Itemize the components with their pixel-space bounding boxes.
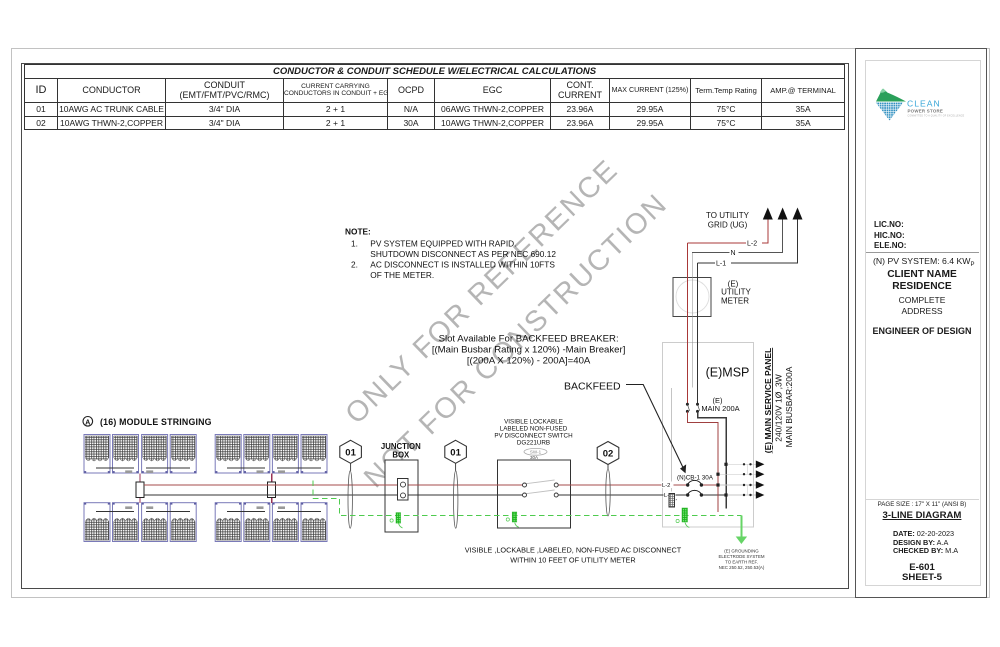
svg-text:GRID (UG): GRID (UG) [708,221,748,230]
svg-text:1.: 1. [351,238,358,248]
svg-text:(E) GROUNDING: (E) GROUNDING [724,549,759,554]
svg-text:SW-1: SW-1 [530,450,542,455]
svg-text:2.: 2. [351,259,358,269]
svg-text:N: N [731,250,736,257]
svg-text:OF THE METER.: OF THE METER. [370,270,434,280]
svg-text:30A: 30A [530,455,538,460]
svg-text:(E)MSP: (E)MSP [706,366,750,380]
svg-text:TO UTILITY: TO UTILITY [706,211,750,220]
svg-text:VISIBLE ,LOCKABLE ,LABELED, NO: VISIBLE ,LOCKABLE ,LABELED, NON-FUSED AC… [465,546,682,555]
svg-text:NEC 250.52, 250.53(A): NEC 250.52, 250.53(A) [719,565,765,570]
svg-text:VISIBLE LOCKABLE: VISIBLE LOCKABLE [504,418,563,425]
svg-text:*: * [676,498,678,503]
svg-text:01: 01 [345,447,356,458]
svg-text:(N)CB-1 30A: (N)CB-1 30A [677,475,714,482]
svg-text:AC DISCONNECT IS INSTALLED WIT: AC DISCONNECT IS INSTALLED WITHIN 10FTS [370,259,555,269]
svg-text:BACKFEED: BACKFEED [564,381,621,393]
svg-text:(E) MAIN SERVICE PANEL: (E) MAIN SERVICE PANEL [763,348,773,453]
svg-text:LABELED NON-FUSED: LABELED NON-FUSED [500,425,568,432]
svg-text:NOTE:: NOTE: [345,227,371,237]
svg-text:[(Main Busbar Rating x 120%) -: [(Main Busbar Rating x 120%) -Main Break… [432,344,626,355]
svg-text:SHUTDOWN DISCONNECT AS PER NEC: SHUTDOWN DISCONNECT AS PER NEC 690.12 [370,249,556,259]
svg-text:DG221URB: DG221URB [517,440,550,447]
svg-text:(16) MODULE STRINGING: (16) MODULE STRINGING [100,417,212,427]
svg-text:PV DISCONNECT SWITCH: PV DISCONNECT SWITCH [494,433,573,440]
svg-text:ELECTRODE SYSTEM: ELECTRODE SYSTEM [718,554,764,559]
svg-text:L-2: L-2 [747,241,757,248]
svg-text:L-2: L-2 [662,483,670,489]
svg-text:02: 02 [603,449,614,460]
svg-text:POWER STORE: POWER STORE [908,109,944,114]
svg-text:WITHIN 10 FEET OF UTILITY METE: WITHIN 10 FEET OF UTILITY METER [510,556,635,565]
svg-text:METER: METER [721,297,749,306]
svg-text:240/120V 1Ø ,3W: 240/120V 1Ø ,3W [774,374,784,442]
svg-text:Slot Available For BACKFEED BR: Slot Available For BACKFEED BREAKER: [439,334,619,345]
svg-text:[(200A X 120%) - 200A]=40A: [(200A X 120%) - 200A]=40A [467,356,591,367]
svg-text:UTILITY: UTILITY [721,288,751,297]
svg-text:A: A [85,419,90,426]
svg-text:BOX: BOX [392,451,410,460]
svg-text:01: 01 [450,447,461,458]
svg-text:MAIN BUSBAR:200A: MAIN BUSBAR:200A [784,366,794,447]
svg-text:MAIN 200A: MAIN 200A [701,404,739,413]
svg-text:L-1: L-1 [716,261,726,268]
svg-text:PV SYSTEM EQUIPPED WITH RAPID.: PV SYSTEM EQUIPPED WITH RAPID. [370,238,516,248]
svg-text:TO EARTH REF.: TO EARTH REF. [725,560,758,565]
svg-text:CLEAN: CLEAN [907,98,941,108]
svg-text:COMMITTED TO A QUALITY OF EXCE: COMMITTED TO A QUALITY OF EXCELLENCE [908,114,965,117]
